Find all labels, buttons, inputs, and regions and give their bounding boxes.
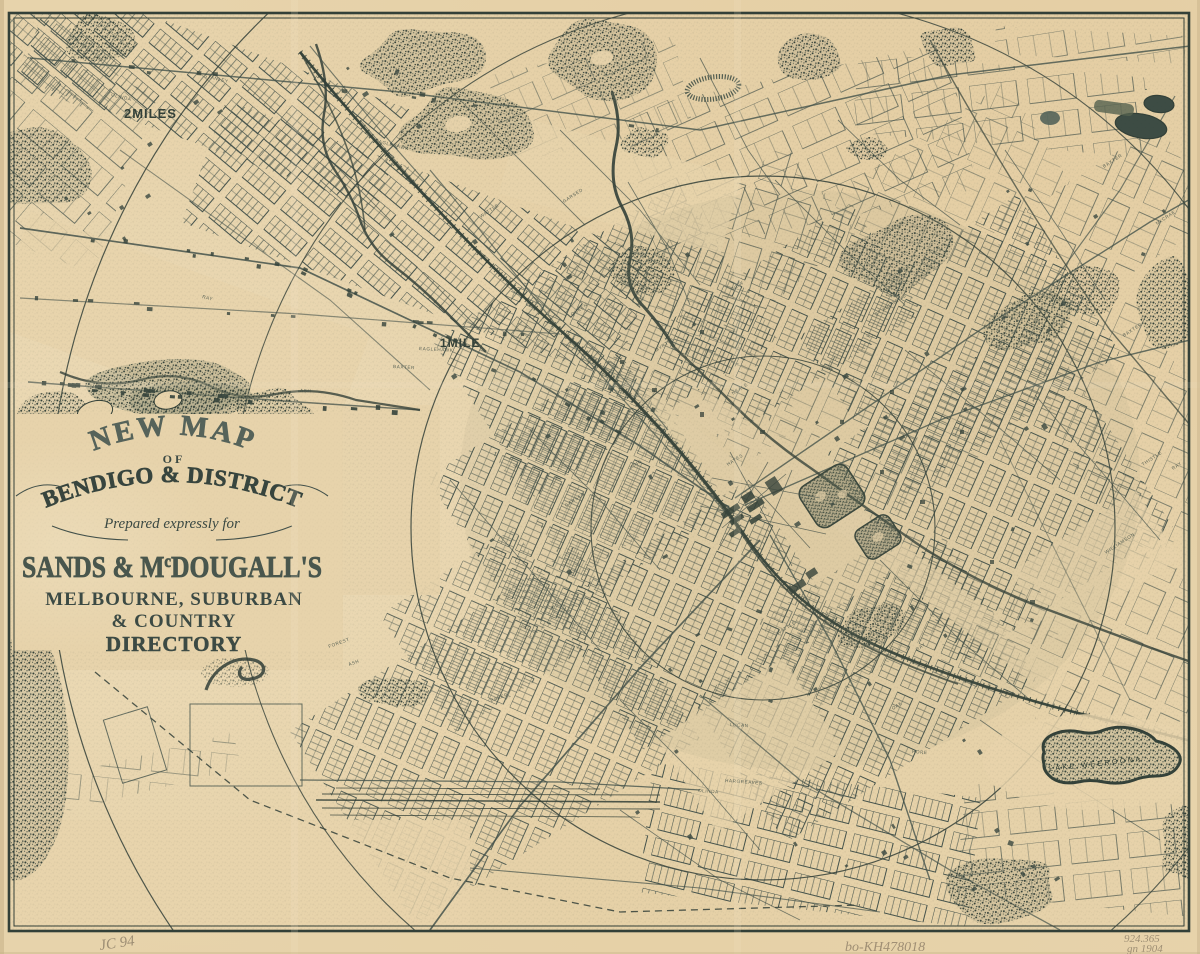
svg-text:& COUNTRY: & COUNTRY [112, 611, 237, 632]
svg-text:DIRECTORY: DIRECTORY [106, 632, 242, 656]
svg-text:SANDS & McDOUGALL'S: SANDS & McDOUGALL'S [22, 549, 322, 584]
svg-text:bo-KH478018: bo-KH478018 [845, 940, 925, 954]
svg-text:ASH: ASH [300, 388, 311, 394]
svg-text:2MILES: 2MILES [124, 106, 177, 121]
svg-text:Prepared expressly for: Prepared expressly for [103, 516, 240, 532]
svg-text:gn 1904: gn 1904 [1127, 943, 1163, 954]
svg-text:MELBOURNE, SUBURBAN: MELBOURNE, SUBURBAN [45, 589, 303, 610]
